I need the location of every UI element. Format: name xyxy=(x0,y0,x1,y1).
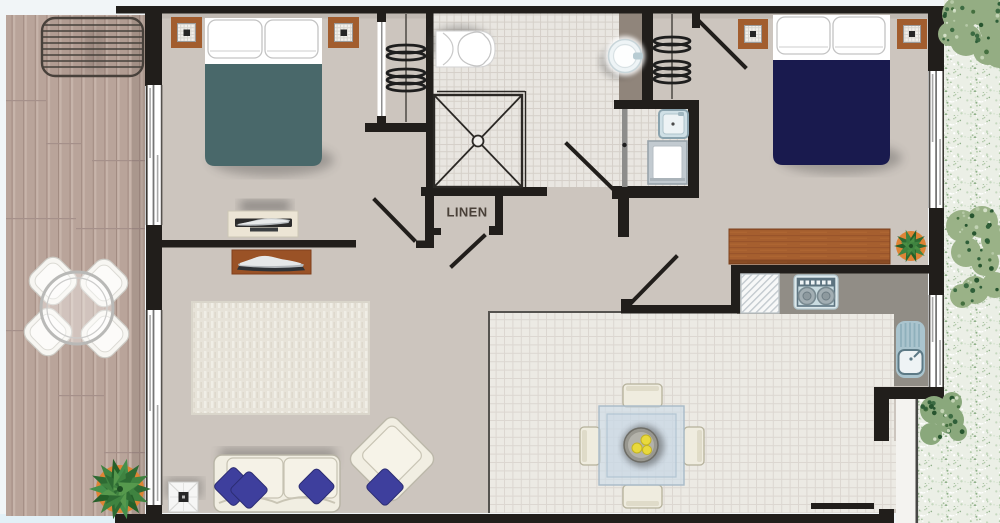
svg-text:LINEN: LINEN xyxy=(447,205,488,220)
